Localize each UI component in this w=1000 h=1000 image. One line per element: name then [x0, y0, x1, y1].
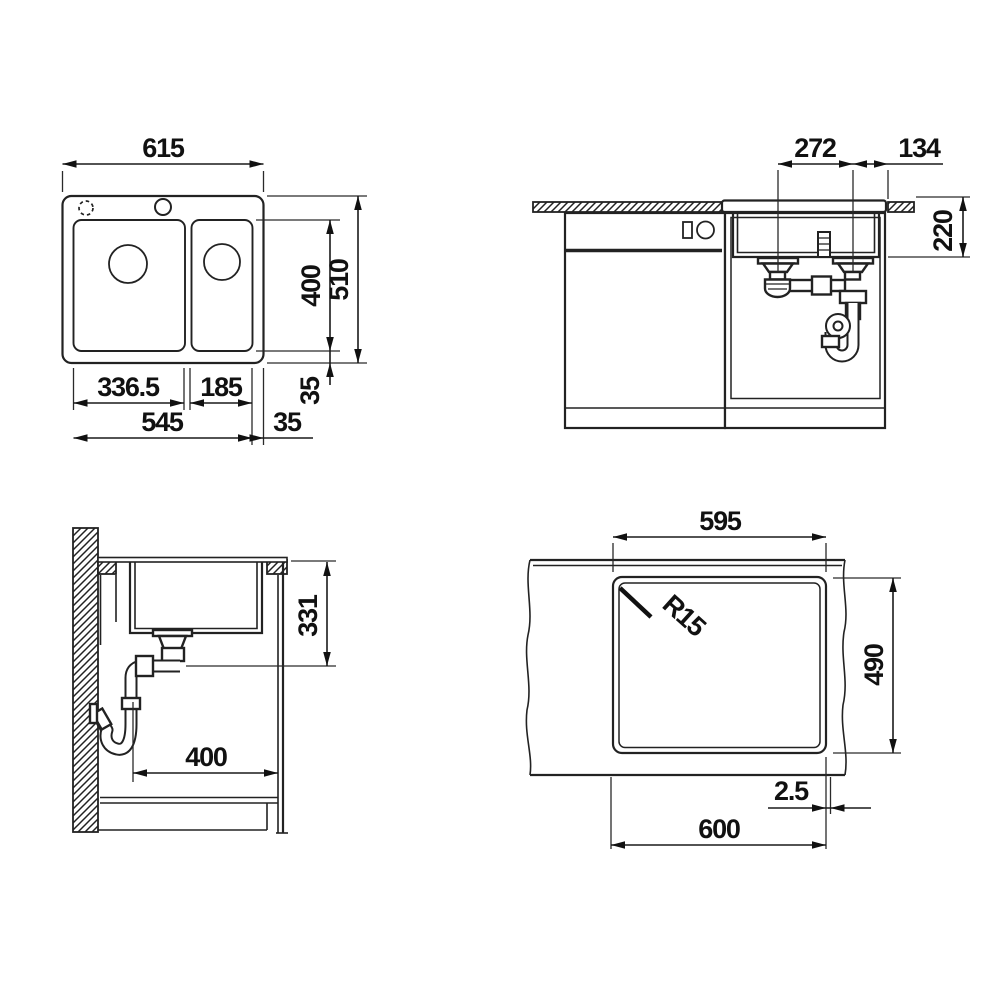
dim-label-220: 220 — [928, 210, 958, 252]
wall-section — [73, 528, 98, 832]
sink-outline — [63, 196, 264, 363]
sink-technical-drawing: 615 400 510 35 — [0, 0, 1000, 1000]
dim-label-595: 595 — [699, 506, 742, 536]
dim-label-272: 272 — [794, 133, 836, 163]
top-view: 615 400 510 35 — [63, 133, 368, 445]
dim-label-134: 134 — [898, 133, 941, 163]
worktop-left-section — [533, 202, 722, 212]
bowl-section-outer — [130, 562, 262, 633]
cabinet-left — [565, 213, 725, 428]
dim-label-185: 185 — [200, 372, 243, 402]
dim-label-35-bottom: 35 — [295, 376, 325, 405]
break-line-left — [526, 560, 530, 775]
dim-label-35-right: 35 — [273, 407, 302, 437]
worktop-right-section — [888, 202, 914, 212]
sink-flange — [722, 201, 886, 213]
dim-label-336-5: 336.5 — [97, 372, 160, 402]
cutout-view: R15 595 490 2.5 — [526, 506, 901, 849]
dim-label-545: 545 — [141, 407, 184, 437]
dim-label-400: 400 — [296, 265, 326, 307]
drain-cap-left — [765, 280, 790, 298]
dim-label-600: 600 — [698, 814, 740, 844]
sink-rim — [98, 558, 287, 563]
side-plumbing — [90, 630, 192, 749]
cabinet-sink — [725, 213, 885, 428]
front-view: 272 134 220 — [533, 133, 970, 428]
dim-label-510: 510 — [324, 259, 354, 301]
wall-outlet — [90, 704, 97, 723]
dim-label-2-5: 2.5 — [774, 776, 809, 806]
dim-overall-width: 615 — [63, 133, 264, 192]
technical-drawing-page: 615 400 510 35 — [0, 0, 1000, 1000]
cutout-outline — [613, 577, 826, 753]
dim-cabinet-depth: 400 — [133, 702, 278, 782]
dim-label-615: 615 — [142, 133, 185, 163]
dim-depths: 400 510 35 — [256, 196, 367, 405]
side-view: 331 400 — [73, 528, 336, 833]
bowl-section-inner — [135, 562, 257, 629]
dim-label-331: 331 — [293, 594, 323, 637]
dim-label-400-side: 400 — [185, 742, 227, 772]
trap-nut-top — [840, 291, 866, 303]
dim-label-490: 490 — [859, 644, 889, 686]
dim-bowl-widths: 336.5 185 545 35 — [74, 368, 314, 445]
